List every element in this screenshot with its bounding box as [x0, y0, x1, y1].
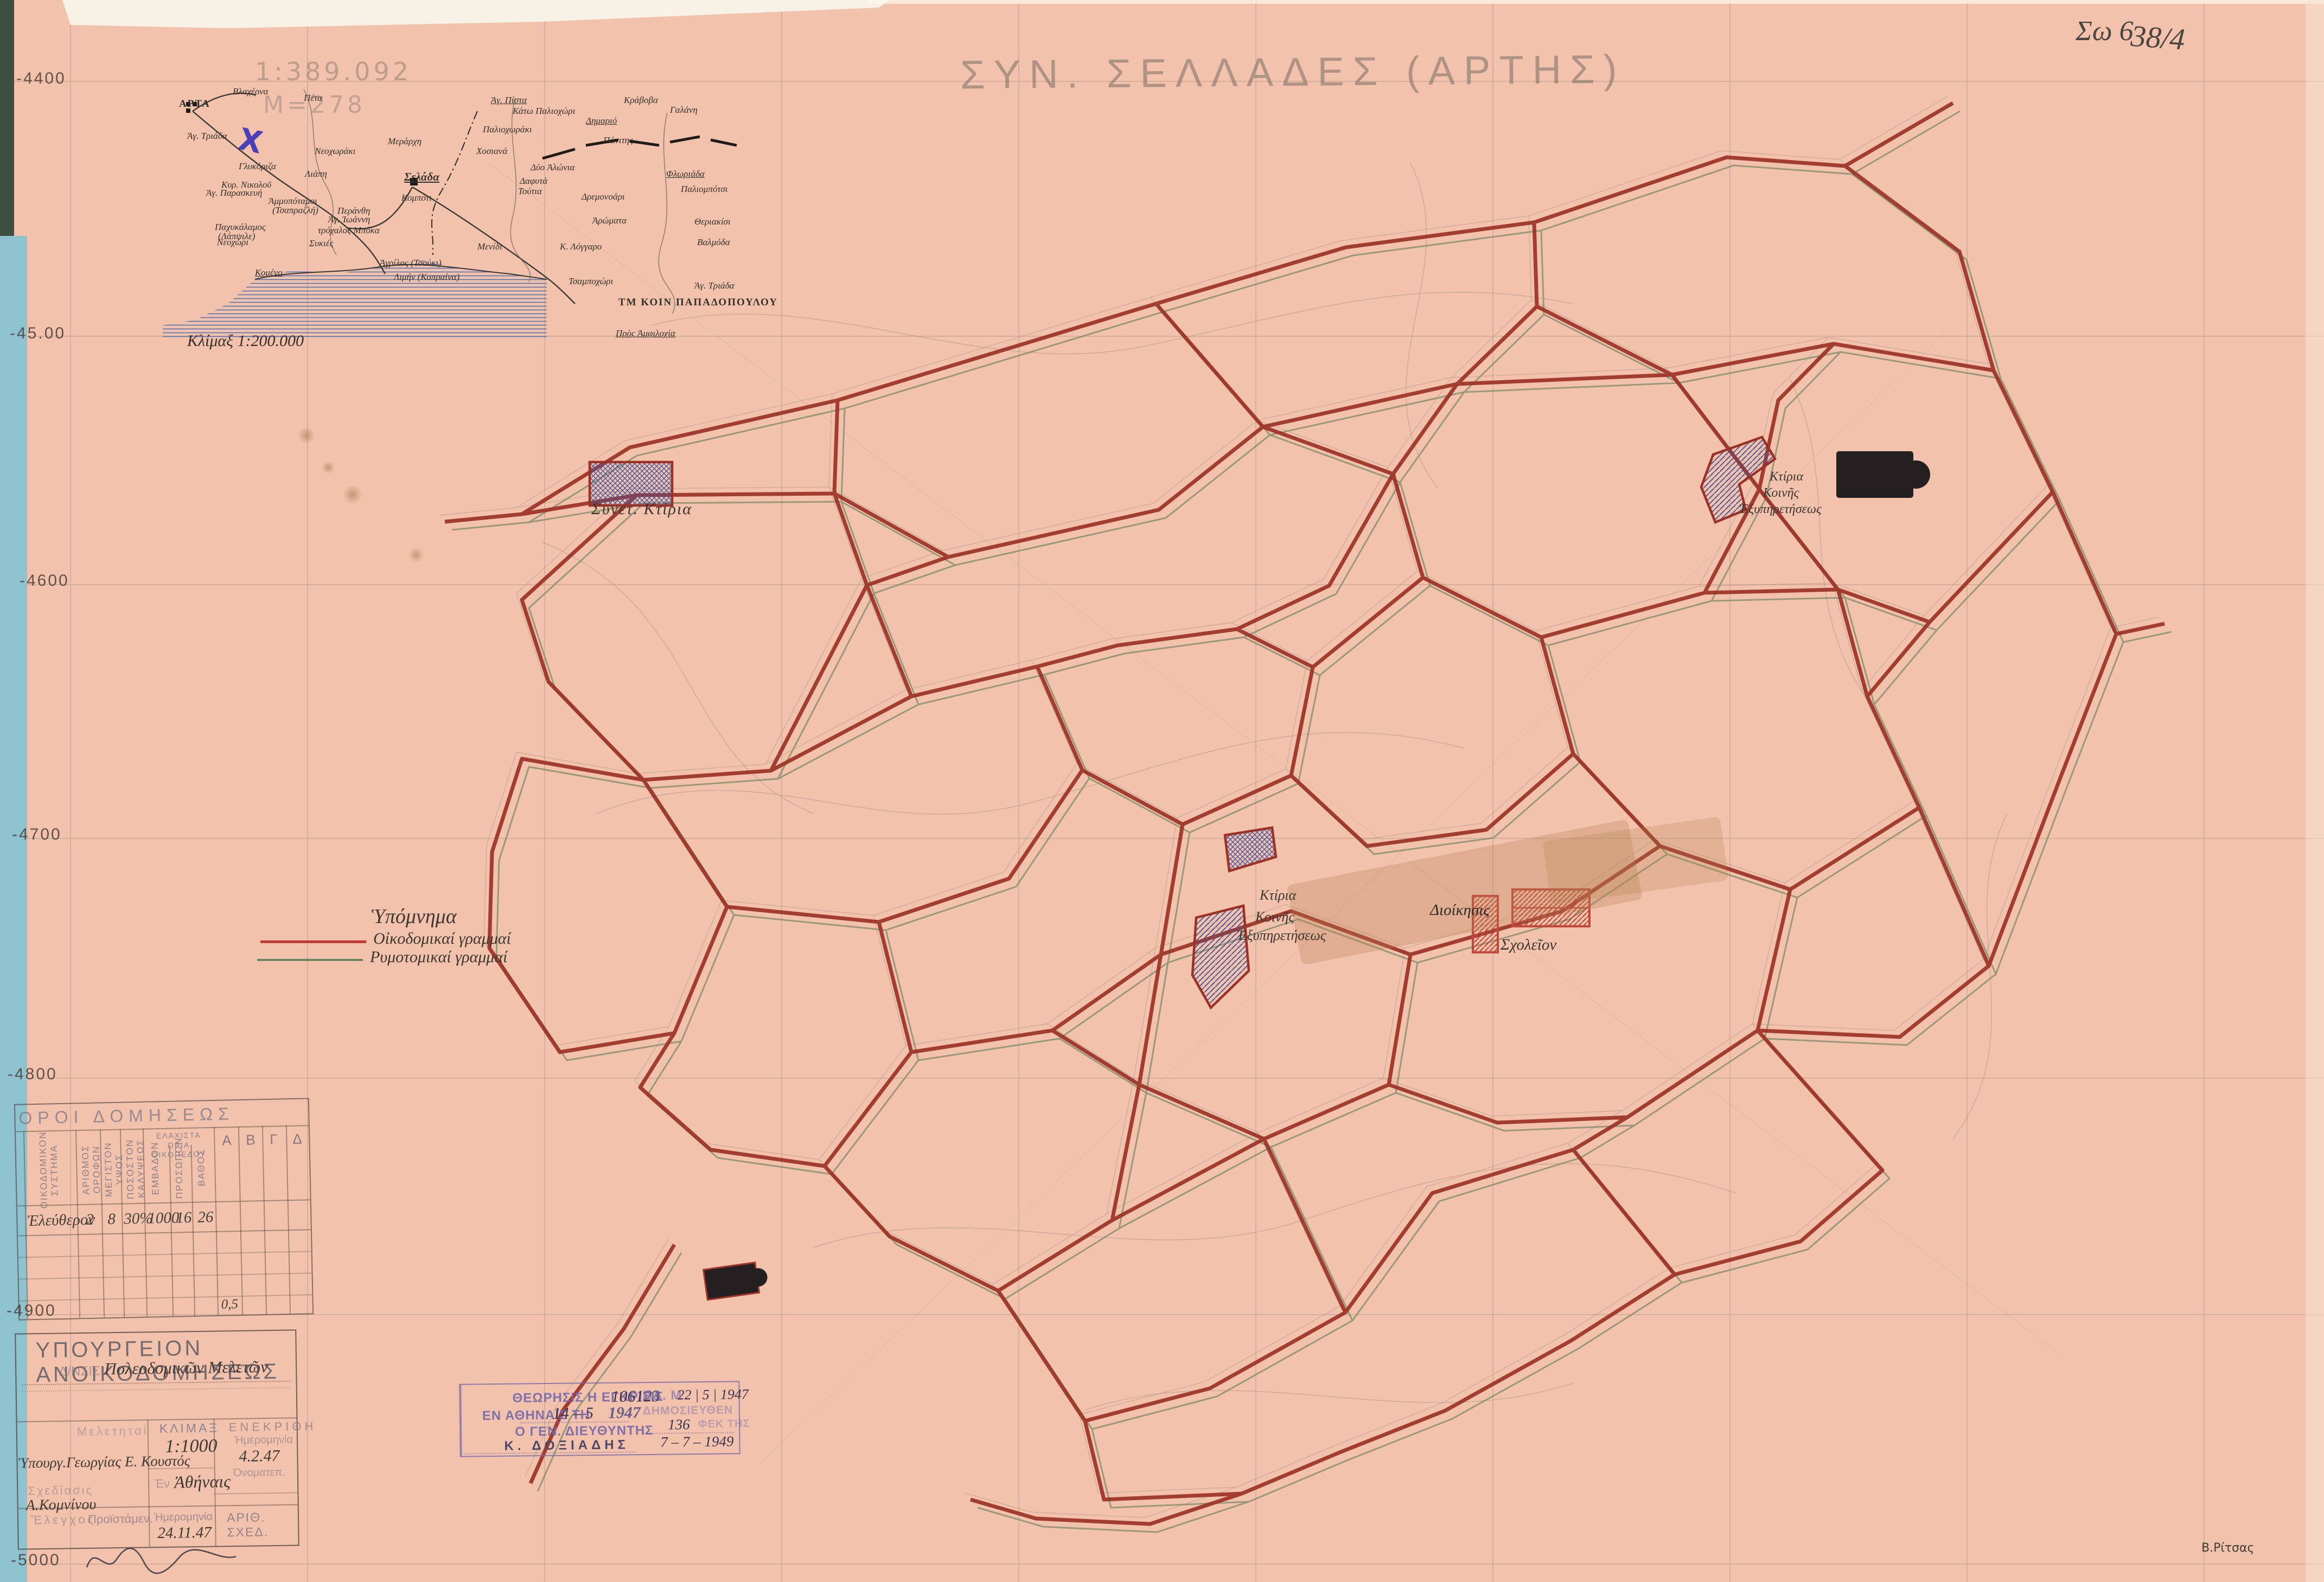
administration-label: Διοίκησις: [1430, 901, 1490, 919]
public-buildings-label-right: Ἐξυπηρετήσεως: [1739, 502, 1822, 517]
column-header: ΠΟΣΟΣΤΟΝ ΚΑΛΥΨΕΩΣ: [124, 1131, 148, 1207]
inset-place-label: Νεοχώρι: [217, 238, 248, 247]
public-buildings-label-center: Ἐξυπηρετήσεως: [1237, 927, 1326, 944]
sxediasis-value: Α.Κομνίνου: [25, 1496, 96, 1515]
inset-place-label: Ἁγ. Πίστα: [491, 95, 527, 105]
bd-value: 22 | 5 | 1947: [677, 1386, 749, 1403]
grid-number: -4700: [12, 825, 62, 844]
fek-number: 136: [668, 1416, 690, 1433]
zone-letter: Γ: [270, 1131, 278, 1148]
grid-number: -45.00: [10, 324, 66, 343]
column-header: ΜΕΓΙΣΤΟΝ ΥΨΟΣ: [103, 1131, 126, 1207]
inset-place-label: Παχυκάλαμος: [215, 222, 266, 232]
table-value: Ἐλεύθερον: [27, 1211, 95, 1231]
note-top-right-2: 38/4: [2130, 19, 2186, 57]
klimax-label: ΚΛΙΜΑΞ: [159, 1420, 220, 1436]
inset-place-label: Κάτω Παλιοχώρι: [513, 106, 575, 116]
arith-label: ΑΡΙΘ. ΣΧΕΔ.: [227, 1509, 298, 1540]
inset-place-label: Λιμήν (Κοπραίνα): [394, 272, 459, 281]
inset-place-label: Παλιομπότσι: [681, 184, 728, 194]
table-value: 16: [176, 1209, 192, 1227]
melethtai-value: Ὑπουργ.Γεωργίας Ε. Κουστός: [18, 1452, 190, 1471]
public-buildings-label-right: Κτίρια: [1770, 470, 1803, 484]
inset-place-label: Παλιοχωράκι: [483, 125, 532, 134]
approval-stamp: ΘΕΩΡΗΣΙΣ Η ΕΓΚΡΙΣΙΣ 106123 ΕΝ ΑΘΗΝΑΙΣ ΤΗ…: [459, 1381, 740, 1457]
column-header: ΒΑΘΟΣ: [195, 1129, 208, 1205]
stain: [342, 485, 363, 504]
legend-green-line: [257, 959, 363, 961]
inset-place-label: Μεράρχη: [388, 137, 422, 146]
table-value: 26: [197, 1208, 214, 1227]
date-year: 1947: [608, 1404, 641, 1423]
edge-strip-right: [2306, 0, 2324, 1582]
column-header: ΠΡΟΣΩΠΟΝ: [173, 1130, 186, 1206]
fek-label: ΦΕΚ ΤΗΣ: [698, 1418, 750, 1431]
inset-place-label: Πέτα: [304, 93, 322, 103]
coop-buildings-label: Συνετ. Κτίρια: [591, 500, 692, 518]
building-terms-table: ΟΡΟΙ ΔΟΜΗΣΕΩΣ ΕΛΑΧΙΣΤΑ ΟΡΙΑ ΟΙΚΟΠΕΔΟΥ ΟΙ…: [14, 1098, 314, 1320]
bd-label: ΒΔ. Μ: [642, 1388, 682, 1404]
hmer-label-2: Ἡμερομηνία: [154, 1511, 213, 1525]
hmer-label: Ἡμερομηνία: [234, 1434, 293, 1448]
inset-place-label: Δαφυτά: [520, 176, 547, 185]
inset-place-label: Πρὸς Ἀμφιλοχία: [616, 329, 675, 338]
map-sheet: ΣΥΝ. ΣΕΛΛΑΔΕΣ (ΑΡΤΗΣ) Σω 6 38/4 1:389.09…: [0, 0, 2324, 1582]
table-value: 8: [107, 1210, 116, 1228]
inset-place-label: Τούτια: [518, 187, 542, 196]
grid-number: -4600: [20, 572, 69, 590]
inset-place-label: Ἁγ. Παρασκευή: [206, 188, 262, 197]
sheet-title: ΣΥΝ. ΣΕΛΛΑΔΕΣ (ΑΡΤΗΣ): [960, 46, 1626, 98]
inset-map: ΒλαχέρναΑΡΤΑΠέταἉγ. ΠίσταΚάτω ΠαλιοχώριΚ…: [152, 80, 749, 343]
inset-town-symbols: [186, 102, 418, 185]
column-header: ΑΡΙΘΜΟΣ ΟΡΟΦΩΝ: [80, 1131, 103, 1208]
inset-place-label: Ἁγ. Τριάδα: [187, 131, 227, 140]
public-buildings-label-center: Κοινῆς: [1255, 909, 1294, 925]
dept-label: Δ/ΝΣΙΣ: [59, 1363, 100, 1379]
inset-place-label: Μενίδι: [477, 242, 502, 251]
inset-place-label: Πάνιτης: [603, 136, 633, 145]
zone-letter: Δ: [292, 1131, 302, 1148]
column-header: ΕΜΒΑΔΟΝ: [149, 1130, 162, 1206]
table-value: 2: [86, 1211, 94, 1229]
inset-place-label: Συκιές: [309, 239, 333, 248]
table-title: ΟΡΟΙ ΔΟΜΗΣΕΩΣ: [18, 1104, 234, 1128]
inset-place-label: Σελάδα: [404, 171, 439, 183]
inset-place-label: Κ. Λόγγαρο: [560, 242, 602, 251]
inset-place-label: Δρεμονοάρι: [582, 192, 625, 201]
surveyor-name: Β.Ρίτσας: [2201, 1541, 2254, 1555]
school-label: Σχολεῖον: [1501, 936, 1556, 954]
inset-place-label: ΤΜ ΚΟΙΝ ΠΑΠΑΔΟΠΟΥΛΟΥ: [618, 297, 778, 308]
zone-letter: Β: [246, 1131, 256, 1148]
proistamen-label: Προϊστάμεν.: [88, 1511, 153, 1527]
inset-place-label: Φλωριάδα: [666, 169, 705, 178]
melethtai-label: Μελετηταί: [77, 1424, 149, 1439]
date-day: 14 – 5: [553, 1404, 593, 1423]
elegxos-label: Ἔλεγχος: [30, 1513, 96, 1528]
stain: [321, 461, 335, 474]
stain: [408, 548, 424, 562]
en-value: Ἀθήναις: [174, 1471, 231, 1492]
ministry-block: ΥΠΟΥΡΓΕΙΟΝ ΑΝΟΙΚΟΔΟΜΗΣΕΩΣ Δ/ΝΣΙΣ Πολεοδο…: [15, 1329, 299, 1549]
inset-place-label: Γαλάνη: [670, 105, 698, 114]
onomatep-label: Ὀνοματεπ.: [233, 1466, 285, 1479]
note-top-right-1: Σω 6: [2076, 15, 2134, 47]
inset-place-label: Ἀρώματα: [592, 216, 627, 225]
inset-place-label: Χοσιανά: [476, 146, 507, 156]
inset-scale-label: Κλίμαξ 1:200.000: [187, 332, 304, 350]
zone-letter: Α: [222, 1132, 232, 1149]
elegxos-date: 24.11.47: [157, 1524, 212, 1542]
enekrithi-label: ΕΝΕΚΡΙΘΗ: [229, 1419, 317, 1434]
legend-title: Ὑπόμνημα: [372, 905, 457, 928]
public-buildings-label-center: Κτίρια: [1260, 887, 1296, 904]
inset-place-label: Κομένο: [255, 268, 283, 277]
signature-scribble: [87, 1548, 236, 1573]
grid-number: -5000: [11, 1551, 61, 1570]
cooperative-buildings-hatch: [590, 437, 1775, 1008]
inset-boundary-bold-dashes: [542, 137, 737, 158]
inset-place-label: Ἁγ. Τριάδα: [694, 281, 735, 290]
edge-strip-green: [0, 0, 14, 239]
inset-place-label: Ἀγρίλος (Τσούκι): [380, 258, 442, 267]
inset-place-label: Δημαριό: [586, 116, 617, 125]
grid-number: -4800: [8, 1065, 58, 1084]
inset-place-label: Δύο Ἀλώνια: [531, 163, 574, 172]
inset-place-label: Βαλμόδα: [697, 238, 730, 247]
legend: Ὑπόμνημα Οἰκοδομικαί γραμμαί Ρυμοτομικαί…: [260, 905, 586, 970]
dept-value: Πολεοδομικῶν Μελετῶν: [104, 1357, 268, 1379]
inset-place-label: Κράβοβα: [624, 95, 658, 105]
legend-item-label: Οἰκοδομικαί γραμμαί: [373, 930, 511, 948]
column-header: ΟΙΚΟΔΟΜΙΚΟΝ ΣΥΣΤΗΜΑ: [37, 1132, 61, 1209]
inset-place-label: (Τσαπραζλή): [272, 206, 318, 215]
legend-red-line: [260, 940, 366, 943]
stain: [297, 427, 316, 444]
table-value: 1000: [148, 1209, 180, 1227]
inset-place-label: Βλαχέρνα: [233, 87, 268, 96]
inset-place-label: Ἀμμοπόταμοι: [269, 196, 317, 206]
legend-item-label: Ρυμοτομικαί γραμμαί: [370, 948, 507, 966]
inset-place-label: Γλυκόριζα: [239, 162, 276, 171]
public-buildings-label-right: Κοινῆς: [1763, 486, 1799, 501]
fek-date: 7 – 7 – 1949: [660, 1433, 733, 1450]
table-extra-value: 0,5: [221, 1297, 238, 1312]
torn-paper-edge: [62, 0, 890, 28]
enekrithi-date: 4.2.47: [239, 1447, 279, 1466]
inset-place-label: Θεριακίσι: [694, 217, 731, 226]
inset-place-label: τρόχαλος Μπόκα: [318, 226, 380, 235]
inset-place-label: Κομπότι: [401, 193, 432, 202]
inset-place-label: ΑΡΤΑ: [179, 99, 210, 109]
inset-place-label: Νεοχωράκι: [315, 146, 355, 156]
inset-place-label: Ἁγ. Ἰωάννη: [328, 215, 370, 224]
inset-place-label: Τσαμποχώρι: [569, 277, 613, 286]
director-label: Ο ΓΕΝ. ΔΙΕΥΘΥΝΤΗΣ: [515, 1423, 654, 1440]
klimax-value: 1:1000: [165, 1436, 218, 1457]
grid-number: -4400: [16, 69, 66, 88]
en-label: Ἐν: [155, 1477, 170, 1491]
inset-place-label: Λιάπη: [305, 169, 327, 178]
